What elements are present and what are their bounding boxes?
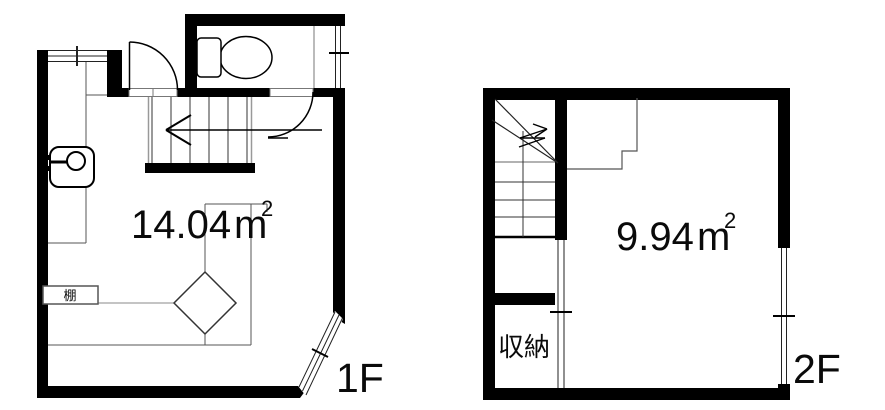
window-toilet-icon bbox=[314, 26, 349, 88]
floor-plan-1f: 棚 14.04 m 2 1F bbox=[37, 14, 384, 401]
toilet-icon bbox=[197, 37, 272, 79]
floor-plan-svg: 棚 14.04 m 2 1F bbox=[0, 0, 885, 410]
window-top-left-icon bbox=[48, 46, 107, 66]
staircase-2f bbox=[492, 99, 558, 237]
storage-label: 収納 bbox=[498, 332, 550, 362]
shelf-label: 棚 bbox=[63, 288, 76, 303]
sink-icon bbox=[44, 147, 94, 187]
shelf: 棚 bbox=[43, 286, 98, 304]
stair-break-lines bbox=[492, 99, 558, 163]
floor-plan-2f: 9.94 m 2 収納 2F bbox=[483, 88, 841, 400]
area-exponent-2f: 2 bbox=[724, 208, 736, 233]
floor-plan: 棚 14.04 m 2 1F bbox=[0, 0, 885, 410]
area-value-2f: 9.94 bbox=[616, 215, 694, 259]
toilet-door-icon bbox=[268, 92, 313, 138]
stairwell-step-outline bbox=[567, 98, 637, 169]
window-right-icon bbox=[773, 248, 795, 384]
column-icon bbox=[174, 272, 236, 334]
stair-direction-arrow-icon bbox=[166, 115, 322, 145]
entrance-door-icon bbox=[130, 42, 178, 90]
area-value-1f: 14.04 bbox=[131, 203, 231, 247]
partition-opening-icon bbox=[550, 240, 572, 388]
area-exponent-1f: 2 bbox=[261, 196, 273, 221]
floor-label-2f: 2F bbox=[793, 346, 841, 392]
floor-label-1f: 1F bbox=[336, 355, 384, 401]
toilet-door-threshold bbox=[270, 89, 313, 97]
staircase-1f bbox=[149, 97, 323, 163]
